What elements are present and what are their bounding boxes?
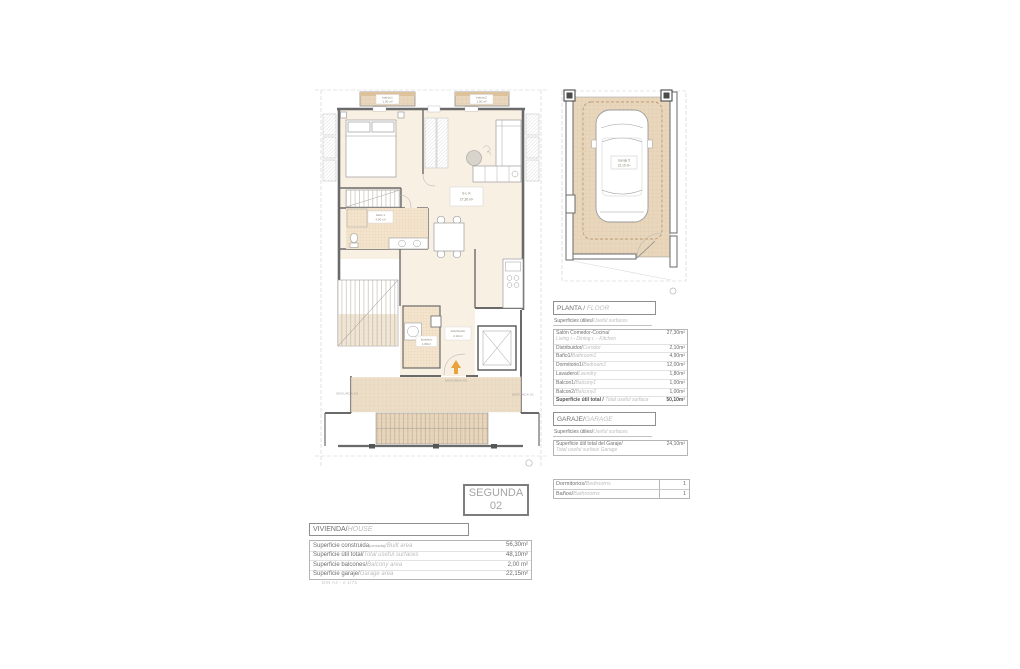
living-area: 27,30 m² [460, 198, 474, 202]
row-value: 12,00m² [667, 363, 685, 369]
row-label-es: Superficie balcones/ [313, 562, 367, 568]
laundry-area: 1,80m² [422, 342, 431, 346]
kitchen-counter [503, 259, 523, 308]
row-label-en: Balcony2 [575, 389, 596, 395]
row-label-en: Bedroom1 [583, 362, 606, 368]
row-label-en: Bedrooms [586, 481, 611, 487]
bath-area: 4,90 m² [375, 218, 385, 222]
row-label-es: Baños/ [556, 491, 573, 497]
row-value: 2,10m² [669, 346, 685, 352]
house-section-title: VIVIENDA/HOUSE [309, 523, 469, 536]
row-label: Dormitorio1/Bedroom1 [556, 363, 606, 369]
row-label-es: Superficie garaje/ [313, 571, 360, 577]
table-row: Lavadero/Laundry 1,80m² [554, 371, 687, 380]
row-label: Distribuidor/Corridor [556, 346, 601, 352]
floor-subtitle-en: Useful surfaces [593, 318, 627, 324]
unit-marker-label: SEGUNDA 02 [445, 379, 467, 383]
row-value: 1,00m² [669, 390, 685, 396]
row-value: 56,30m² [506, 542, 528, 550]
garage-label: Garaje 5 22,15 m² [611, 156, 637, 169]
table-row: Superficie construida(cerrada)/Built are… [310, 541, 531, 552]
table-row: Dormitorios/Bedrooms 1 [554, 480, 689, 490]
row-label-es: Superficie construida [313, 543, 369, 549]
floor-subtitle-es: Superficies útiles/ [554, 318, 593, 324]
balcony1-label: balcón1 1,00 m² [376, 95, 399, 105]
garage-subtitle-en: Useful surfaces [593, 429, 627, 435]
row-label-es: Balcon1/ [556, 380, 575, 386]
bath-name: baño 1 [376, 213, 386, 217]
table-row: Superficie útil total/Total useful surfa… [310, 552, 531, 562]
row-value: 1,80m² [669, 372, 685, 378]
table-row: Superficie garaje/Garage area 22,15m² [310, 571, 531, 580]
row-label-en: Balcony1 [575, 380, 596, 386]
row-label-en: Total useful surface Garage [556, 448, 623, 454]
table-row: Baño1/Bathroom1 4,90m² [554, 353, 687, 362]
row-label-en: Bathrooms [573, 491, 600, 497]
row-label-en: Living r.- Dining r. - Kitchen [556, 337, 616, 343]
row-label-es: Dormitorios/ [556, 481, 586, 487]
unit-title-line2: 02 [465, 500, 527, 513]
table-row: Superficie útil total del Garaje/ Total … [554, 441, 687, 455]
rooms-count-table: Dormitorios/Bedrooms 1 Baños/Bathrooms 1 [553, 479, 690, 499]
table-row: Dormitorio1/Bedroom1 12,00m² [554, 362, 687, 371]
row-value: 2,00 m² [508, 562, 528, 570]
floor-surfaces-section: PLANTA / FLOOR Superficies útiles/Useful… [553, 301, 688, 406]
garage-name: Garaje 5 [618, 159, 630, 163]
garage-area: 22,15 m² [618, 163, 631, 167]
row-label: Lavadero/Laundry [556, 372, 596, 378]
garage-subtitle-es: Superficies útiles/ [554, 429, 593, 435]
row-label: Superficie garaje/Garage area [313, 571, 393, 579]
row-label: Baño1/Bathroom1 [556, 354, 596, 360]
bed [341, 112, 405, 177]
row-label-es: Dormitorio1/ [556, 362, 583, 368]
row-label: Dormitorios/Bedrooms [554, 480, 659, 489]
lower-stairs [338, 280, 398, 346]
landing-floor [351, 377, 521, 412]
garage-plan-drawing: Garaje 5 22,15 m² [556, 84, 700, 296]
row-label-es: Superficie útil total/ [313, 552, 364, 558]
common-stairs [376, 413, 488, 444]
balcony1-area: 1,00 m² [382, 100, 392, 104]
row-label-en: Bathroom1 [572, 353, 596, 359]
row-value: 1 [659, 490, 689, 499]
row-label-es: Baño1/ [556, 353, 572, 359]
neighbor-left-label: SEGUNDA 03 [336, 392, 358, 396]
table-row: Balcon2/Balcony2 1,00m² [554, 389, 687, 398]
floor-title-es: PLANTA / [557, 305, 587, 312]
row-label: Baños/Bathrooms [554, 490, 659, 499]
row-label-en: Balcony area [367, 562, 402, 568]
coffee-table [467, 151, 482, 166]
floor-section-subtitle: Superficies útiles/Useful surfaces [553, 316, 652, 326]
table-row: Superficie balcones/Balcony area 2,00 m² [310, 561, 531, 571]
row-value: 1,00m² [669, 381, 685, 387]
living-name: S-L-K [462, 192, 471, 196]
row-label: Superficie útil total del Garaje/ Total … [556, 442, 623, 454]
row-value: 4,90m² [669, 354, 685, 360]
bath-label: baño 1 4,90 m² [368, 211, 393, 223]
upper-stairs [346, 190, 400, 207]
balcony2-label: balcón2 1,00 m² [470, 95, 493, 105]
table-total-row: Superficie útil total / Total useful sur… [554, 397, 687, 405]
row-label: Salón Comedor-Cocina/ Living r.- Dining … [556, 331, 616, 343]
balcony2-area: 1,00 m² [476, 100, 486, 104]
garage-title-en: GARAGE [585, 416, 613, 423]
row-value: 1 [659, 480, 689, 489]
corridor-name: distribuidor [451, 329, 466, 333]
house-surfaces-table: Superficie construida(cerrada)/Built are… [309, 540, 532, 580]
garage-ramp-line [573, 261, 671, 280]
corridor-label: distribuidor 2,10m² [445, 327, 471, 340]
sheet-scale-note: DIN A4 - e 1/75 [322, 580, 357, 585]
table-row: Baños/Bathrooms 1 [554, 490, 689, 499]
row-label: Superficie balcones/Balcony area [313, 562, 402, 570]
table-row: Balcon1/Balcony1 1,00m² [554, 380, 687, 389]
row-label-en: Corridor [583, 345, 601, 351]
house-title-es: VIVIENDA/ [313, 526, 348, 533]
survey-marker-icon [526, 460, 532, 466]
floor-title-en: FLOOR [587, 305, 609, 312]
neighbor-right-label: SEGUNDA 01 [512, 393, 534, 397]
table-row: Salón Comedor-Cocina/ Living r.- Dining … [554, 330, 687, 345]
row-label-en: Total useful surface [605, 397, 648, 403]
garage-surfaces-table: Superficie útil total del Garaje/ Total … [553, 440, 688, 456]
row-label: Superficie útil total/Total useful surfa… [313, 552, 419, 560]
row-label-es: Superficie útil total / [556, 397, 605, 403]
unit-title-line1: SEGUNDA [465, 487, 527, 500]
row-label: Superficie construida(cerrada)/Built are… [313, 542, 412, 551]
row-label: Balcon2/Balcony2 [556, 390, 596, 396]
row-label-es: Lavadero/ [556, 371, 578, 377]
row-label: Balcon1/Balcony1 [556, 381, 596, 387]
row-value: 22,15m² [506, 571, 528, 579]
row-label-en: Garage area [360, 571, 394, 577]
elevator [478, 326, 516, 370]
row-label-es: Distribuidor/ [556, 345, 583, 351]
garage-title-es: GARAJE/ [557, 416, 585, 423]
row-label-en: Total useful surfaces [364, 552, 419, 558]
row-label-en: /Built area [385, 543, 412, 549]
kitchen-island [473, 166, 521, 182]
row-value: 50,10m² [666, 398, 685, 404]
house-title-en: HOUSE [348, 526, 373, 533]
table-row: Distribuidor/Corridor 2,10m² [554, 345, 687, 354]
unit-title-box: SEGUNDA 02 [463, 484, 529, 516]
row-label-en: Laundry [578, 371, 596, 377]
row-label: Superficie útil total / Total useful sur… [556, 398, 648, 404]
row-label-es: Balcon2/ [556, 389, 575, 395]
row-value: 24,10m² [667, 442, 685, 448]
floor-section-title: PLANTA / FLOOR [553, 301, 656, 315]
row-value: 48,10m² [506, 552, 528, 560]
garage-surfaces-section: GARAJE/GARAGE Superficies útiles/Useful … [553, 412, 688, 456]
plan-sheet: balcón1 1,00 m² balcón2 1,00 m² [0, 0, 1020, 669]
row-value: 27,30m² [667, 331, 685, 337]
survey-marker-icon [670, 288, 676, 294]
garage-section-subtitle: Superficies útiles/Useful surfaces [553, 427, 652, 437]
floor-surfaces-table: Salón Comedor-Cocina/ Living r.- Dining … [553, 329, 688, 406]
row-label-note: (cerrada) [369, 543, 385, 548]
laundry-label: lavadero 1,80m² [416, 336, 437, 347]
living-label: S-L-K 27,30 m² [450, 187, 483, 206]
corridor-area: 2,10m² [453, 334, 462, 338]
floor-plan-drawing: balcón1 1,00 m² balcón2 1,00 m² [315, 78, 547, 473]
garage-section-title: GARAJE/GARAGE [553, 412, 656, 426]
